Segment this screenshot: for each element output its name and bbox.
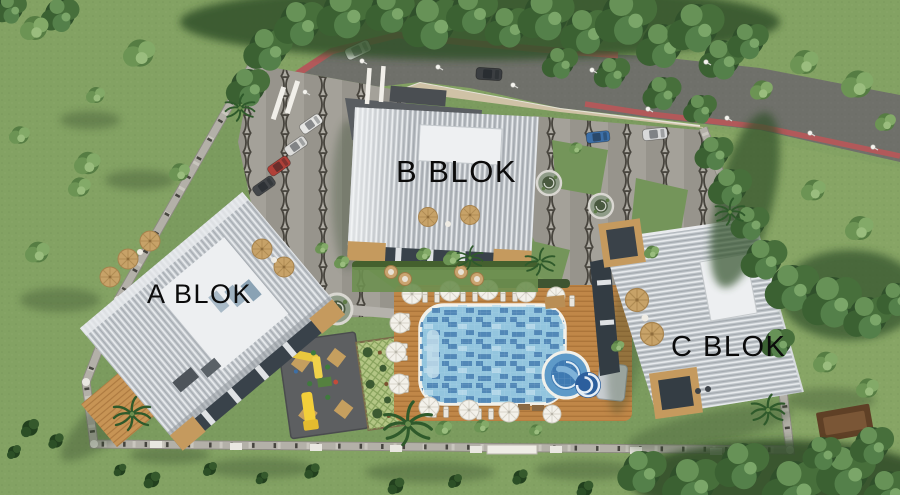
block-c-label: C BLOK	[671, 333, 786, 362]
block-a-label: A BLOK	[147, 281, 252, 308]
site-render-svg	[0, 0, 900, 495]
rear-gate	[487, 445, 537, 454]
swimming-pool	[420, 305, 565, 404]
block-b-label: B BLOK	[396, 156, 517, 187]
site-plan-render: A BLOK B BLOK C BLOK	[0, 0, 900, 495]
